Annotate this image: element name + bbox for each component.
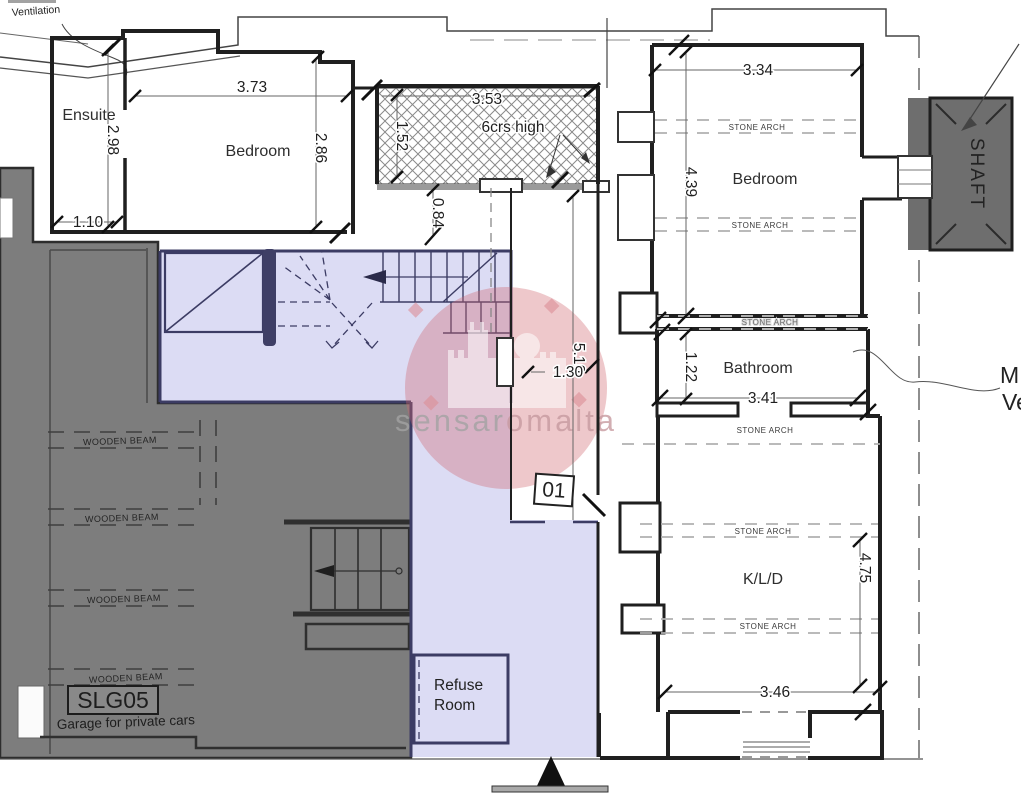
stone-arch-label-1: STONE ARCH [729,123,786,132]
unit-number: 01 [534,474,574,507]
dim-1-10: 1.10 [73,214,104,231]
dim-1-22: 1.22 [682,352,699,382]
dim-4-39: 4.39 [682,167,699,197]
wall-block-br [810,712,882,758]
floorplan-page: sensaromalta [0,0,1021,794]
floorplan-svg: sensaromalta [0,0,1021,794]
garage-niche [0,198,13,238]
shaft-window [898,156,932,198]
garage-code: SLG05 [77,687,149,713]
stone-arch-label-5: STONE ARCH [735,527,792,536]
landing-door [497,338,513,386]
wall-pier-2 [620,503,660,552]
dim-0-84: 0.84 [429,198,446,229]
room-label-bedroom-right: Bedroom [733,171,798,188]
room-label-bathroom: Bathroom [723,360,792,377]
side-note-m: M [1000,362,1019,388]
stone-arch-label-2: STONE ARCH [732,221,789,230]
shaft-zone [898,44,1019,250]
dim-1-52: 1.52 [393,121,410,151]
unit-number-label: 01 [542,478,567,503]
stone-arch-label-4: STONE ARCH [737,426,794,435]
clipped-text-top [8,0,56,3]
dim-2-98: 2.98 [104,125,121,155]
side-note-leader [853,350,1000,391]
dim-3-34: 3.34 [743,62,774,79]
note-6crs-high: 6crs high [482,119,545,136]
ventilation-note: Ventilation [11,4,60,19]
room-label-ensuite: Ensuite [62,107,115,124]
watermark-text: sensaromalta [395,403,617,438]
room-label-bedroom-left: Bedroom [226,143,291,160]
dim-3-53: 3.53 [472,91,502,108]
dim-3-73: 3.73 [237,79,267,96]
stone-arch-label-6: STONE ARCH [740,622,797,631]
garage-recess [18,686,44,738]
dim-4-75: 4.75 [856,553,873,583]
dim-1-30: 1.30 [553,364,584,381]
dim-3-41: 3.41 [748,390,778,407]
dim-3-46: 3.46 [760,684,790,701]
yard-window [480,179,522,192]
bedroom-window-2 [618,175,654,240]
room-label-shaft: SHAFT [966,138,987,210]
bedroom-window [618,112,654,142]
room-label-kld: K/L/D [743,571,783,588]
room-label-refuse-1: Refuse [434,677,483,694]
room-label-refuse-2: Room [434,697,475,714]
entrance-arrow [536,756,566,788]
dim-2-86: 2.86 [312,133,329,163]
stair-wall-stub [263,249,276,346]
side-note-ve: Ve [1002,389,1021,415]
entrance-threshold [492,786,608,792]
stone-arch-label-3: STONE ARCH [742,318,799,327]
